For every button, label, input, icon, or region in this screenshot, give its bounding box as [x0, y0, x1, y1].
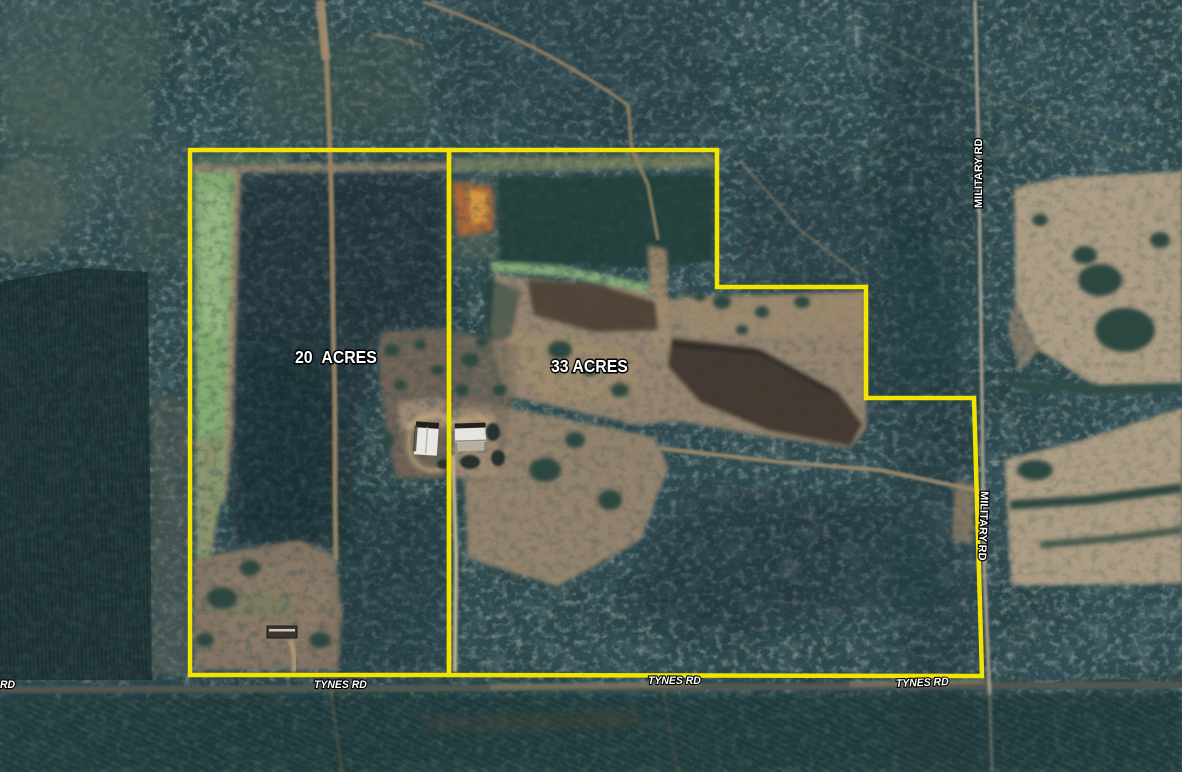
svg-text:TYNES RD: TYNES RD	[896, 676, 949, 690]
svg-text:33 ACRES: 33 ACRES	[551, 356, 628, 376]
svg-text:TYNES RD: TYNES RD	[314, 679, 367, 691]
svg-text:20 ACRES: 20 ACRES	[295, 347, 377, 367]
svg-text:TYNES RD: TYNES RD	[648, 675, 701, 687]
svg-text:RD: RD	[0, 679, 15, 691]
svg-text:MILITARY RD: MILITARY RD	[976, 491, 990, 561]
svg-text:MILITARY RD: MILITARY RD	[973, 138, 985, 208]
